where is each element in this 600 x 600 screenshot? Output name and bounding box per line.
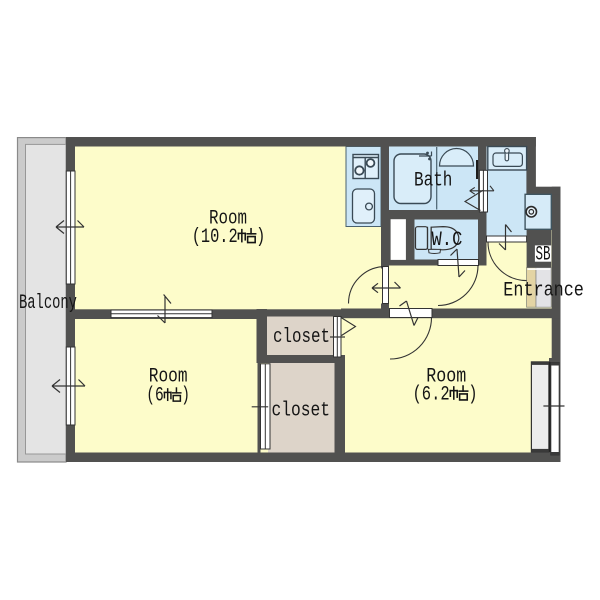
svg-text:(10.2: (10.2 xyxy=(192,226,238,248)
svg-text:(6.2: (6.2 xyxy=(413,384,450,406)
svg-text:closet: closet xyxy=(273,326,330,348)
svg-text:(6: (6 xyxy=(146,385,164,408)
svg-text:closet: closet xyxy=(272,400,331,422)
svg-text:Entrance: Entrance xyxy=(503,279,584,302)
svg-text:): ) xyxy=(468,384,477,406)
svg-text:Bath: Bath xyxy=(414,170,452,192)
svg-text:W.C: W.C xyxy=(432,228,463,252)
svg-text:SB: SB xyxy=(536,244,551,267)
svg-text:Balcony: Balcony xyxy=(19,293,77,315)
svg-text:): ) xyxy=(256,226,265,248)
svg-text:): ) xyxy=(181,385,190,408)
